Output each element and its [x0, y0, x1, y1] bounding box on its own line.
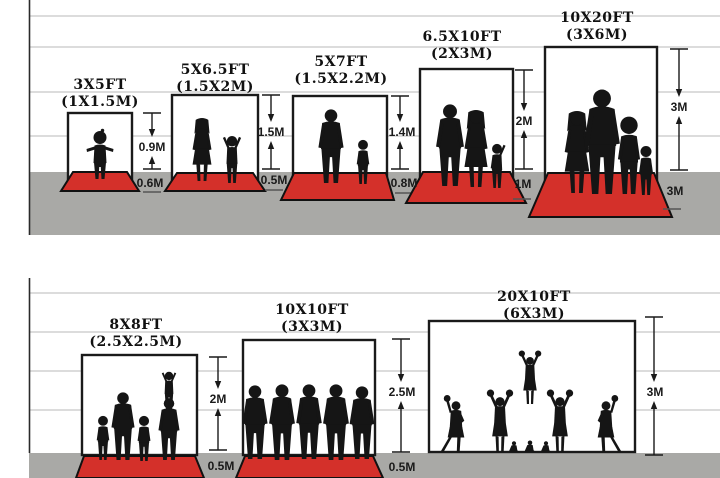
- panel-size-label-ft: 8X8FT: [61, 317, 211, 333]
- panel-size-label-ft: 10X20FT: [522, 10, 672, 26]
- height-value-label: 2M: [188, 392, 248, 406]
- panel-size-label-ft: 20X10FT: [459, 289, 609, 305]
- panel-size-label-ft: 10X10FT: [237, 302, 387, 318]
- height-value-label: 0.9M: [122, 140, 182, 154]
- panel-size-label-ft: 6.5X10FT: [387, 29, 537, 45]
- depth-value-label: 0.6M: [120, 176, 180, 190]
- height-value-label: 2.5M: [372, 385, 432, 399]
- height-value-label: 3M: [649, 100, 709, 114]
- depth-value-label: 3M: [645, 184, 705, 198]
- depth-value-label: 1M: [493, 177, 553, 191]
- depth-value-label: 0.5M: [191, 459, 251, 473]
- height-value-label: 2M: [494, 114, 554, 128]
- height-value-label: 1.5M: [241, 125, 301, 139]
- red-carpet: [76, 456, 204, 478]
- panel-size-label-m: (2.5X2.5M): [61, 334, 211, 350]
- depth-value-label: 0.5M: [244, 173, 304, 187]
- panel-size-label-m: (2X3M): [387, 46, 537, 62]
- depth-value-label: 0.5M: [372, 460, 432, 474]
- panel-size-label-m: (3X6M): [522, 27, 672, 43]
- red-carpet: [236, 456, 383, 478]
- depth-value-label: 0.8M: [374, 176, 434, 190]
- height-value-label: 1.4M: [372, 125, 432, 139]
- panel-size-label-m: (1X1.5M): [25, 94, 175, 110]
- panel-size-label-m: (3X3M): [237, 319, 387, 335]
- panel-size-label-m: (1.5X2.2M): [266, 71, 416, 87]
- backdrop-size-comparison-diagram: 3X5FT (1X1.5M) 5X6.5FT (1.5X2M) 5X7FT (1…: [0, 0, 720, 478]
- panel-size-label-m: (6X3M): [459, 306, 609, 322]
- height-value-label: 3M: [625, 385, 685, 399]
